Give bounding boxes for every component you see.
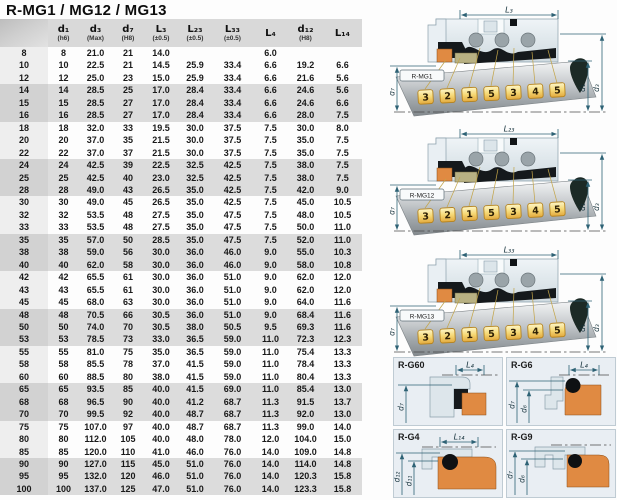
svg-text:1: 1 [466,330,473,341]
table-cell: 62.0 [79,259,112,271]
row-label: 33 [0,221,48,233]
table-cell: 137.0 [79,483,112,495]
table-cell: 27 [112,109,144,121]
row-label: 15 [0,97,48,109]
spring [521,33,535,47]
table-row: 484870.56630.536.051.09.068.411.6 [0,309,362,321]
table-cell: 28.5 [79,84,112,96]
table-cell: 40.0 [144,408,178,420]
row-label: 18 [0,122,48,134]
table-cell: 22 [48,147,79,159]
table-cell: 57.0 [79,234,112,246]
table-cell: 9.0 [253,259,288,271]
table-cell: 59.0 [79,246,112,258]
table-cell: 51.0 [212,284,253,296]
table-cell: 9.0 [253,284,288,296]
table-cell: 27.5 [144,209,178,221]
table-row: 707099.59240.048.768.711.392.013.0 [0,408,362,420]
seal-diagram-r-mg12: R-MG12 3 2 1 5 3 4 5 L₂₃ d₁ [390,123,612,237]
table-cell: 92.0 [288,408,323,420]
table-cell: 38.0 [178,321,212,333]
table-cell: 13.3 [323,371,362,383]
table-cell: 28.5 [144,234,178,246]
table-row: 161628.52717.028.433.46.628.07.5 [0,109,362,121]
table-cell: 109.0 [288,446,323,458]
table-cell: 7.5 [323,172,362,184]
table-cell: 27 [112,97,144,109]
svg-text:d₆: d₆ [520,405,529,413]
table-cell: 6.6 [253,97,288,109]
table-cell: 33.4 [212,97,253,109]
table-cell: 21.5 [144,147,178,159]
table-cell: 58.0 [288,259,323,271]
table-cell: 76.0 [212,446,253,458]
table-cell: 13.3 [323,358,362,370]
table-row: 686896.59040.041.268.711.391.513.7 [0,396,362,408]
table-cell: 92 [112,408,144,420]
table-cell: 7.5 [253,122,288,134]
svg-text:d₁: d₁ [578,324,587,332]
table-cell: 112.0 [79,433,112,445]
svg-text:d₇: d₇ [507,471,515,479]
table-cell: 96.5 [79,396,112,408]
table-cell: 42.5 [212,196,253,208]
table-row: 202037.03521.530.037.57.535.07.5 [0,134,362,146]
table-cell: 68 [48,396,79,408]
svg-text:L₂₃: L₂₃ [504,125,515,134]
table-cell: 58 [112,259,144,271]
svg-text:R-MG13: R-MG13 [410,314,435,321]
table-cell: 25.9 [178,72,212,84]
svg-text:3: 3 [422,92,429,103]
table-cell: 64.0 [288,296,323,308]
table-cell: 59.0 [212,358,253,370]
table-cell: 52.0 [288,234,323,246]
table-cell: 7.5 [253,147,288,159]
table-cell: 13.0 [323,383,362,395]
table-cell: 38.0 [288,159,323,171]
table-cell: 13.0 [323,408,362,420]
table-cell: 9.0 [253,296,288,308]
table-cell: 62.0 [288,271,323,283]
svg-text:d₁₂: d₁₂ [394,472,402,483]
table-cell: 12.0 [323,284,362,296]
table-cell: 41.5 [178,358,212,370]
table-cell: 72.3 [288,333,323,345]
table-cell: 55 [48,346,79,358]
table-row: 9090127.011545.051.076.014.0114.014.8 [0,458,362,470]
table-cell: 6.6 [253,72,288,84]
row-label: 42 [0,271,48,283]
svg-text:2: 2 [444,210,451,221]
table-cell: 53.5 [79,221,112,233]
dim-d11: d₁₁ [405,461,439,495]
svg-text:1: 1 [466,209,473,220]
table-cell: 35.0 [144,346,178,358]
table-cell: 68.0 [79,296,112,308]
table-cell: 37.0 [79,134,112,146]
table-cell: 80 [112,371,144,383]
table-cell: 7.5 [253,184,288,196]
table-cell: 80.4 [288,371,323,383]
svg-text:2: 2 [444,331,451,342]
table-cell: 10.5 [323,209,362,221]
table-cell: 7.5 [323,109,362,121]
table-cell: 47.0 [144,483,178,495]
svg-text:L₁₄: L₁₄ [454,433,466,442]
table-cell: 65.5 [79,284,112,296]
table-cell: 6.6 [253,109,288,121]
table-cell: 10 [48,59,79,71]
table-cell: 12.3 [323,333,362,345]
table-row: 8821.02114.06.0 [0,47,362,59]
table-cell: 6.0 [253,47,288,59]
corner-cell [0,19,48,47]
table-cell: 9.0 [253,271,288,283]
seat-drawing-r-g9: d₇ d₆ [507,431,615,497]
table-cell: 93.5 [79,383,112,395]
table-cell: 50 [112,234,144,246]
table-cell: 11.3 [253,408,288,420]
table-cell: 43 [112,184,144,196]
table-cell: 68.7 [212,408,253,420]
table-cell: 36.0 [178,259,212,271]
row-label: 14 [0,84,48,96]
table-cell: 11.6 [323,296,362,308]
table-cell: 28.5 [79,109,112,121]
table-cell: 85 [48,446,79,458]
table-cell: 30.0 [144,296,178,308]
svg-text:d₇: d₇ [390,207,397,215]
table-cell: 42.5 [212,159,253,171]
table-row: 424265.56130.036.051.09.062.012.0 [0,271,362,283]
table-row: 383859.05630.036.046.09.055.010.3 [0,246,362,258]
table-cell: 46.0 [212,246,253,258]
table-cell: 107.0 [79,421,112,433]
table-cell: 78 [112,358,144,370]
table-cell: 21.0 [79,47,112,59]
svg-text:5: 5 [488,208,495,219]
table-cell: 59.0 [212,371,253,383]
svg-text:R-MG1: R-MG1 [412,74,433,81]
table-cell: 14.0 [253,483,288,495]
table-cell: 30.0 [178,134,212,146]
table-cell: 18 [48,122,79,134]
table-cell: 51.0 [212,296,253,308]
seal-housing [428,259,558,304]
table-cell: 12.0 [253,433,288,445]
row-label: 85 [0,446,48,458]
table-cell: 7.5 [323,134,362,146]
table-cell: 50 [48,321,79,333]
table-cell: 14.0 [144,47,178,59]
table-cell: 7.5 [253,196,288,208]
table-cell: 37 [112,147,144,159]
table-cell: 13.7 [323,396,362,408]
table-cell: 7.5 [253,172,288,184]
table-cell: 78.5 [79,333,112,345]
table-cell: 48 [112,221,144,233]
table-cell: 105 [112,433,144,445]
table-cell: 47.5 [212,221,253,233]
dimension-table: d₁(h6) d₃(Max) d₇(H8) L₃(±0.5) L₂₃(±0.5)… [0,19,362,495]
table-cell: 7.5 [253,221,288,233]
table-cell: 85.5 [79,358,112,370]
table-cell: 41.0 [144,446,178,458]
table-cell: 35 [48,234,79,246]
table-cell: 33 [112,122,144,134]
table-cell: 36.5 [178,333,212,345]
detail-panel-r-g9: R-G9 d₇ d₆ [506,429,616,498]
table-cell: 70 [48,408,79,420]
table-row: 454568.06330.036.051.09.064.011.6 [0,296,362,308]
table-cell: 75.4 [288,346,323,358]
row-label: 58 [0,358,48,370]
table-cell: 33.4 [212,109,253,121]
table-cell: 48.0 [178,433,212,445]
svg-text:d₇: d₇ [390,88,397,96]
table-cell: 132.0 [79,470,112,482]
table-cell: 11.0 [253,371,288,383]
table-cell: 36.0 [178,246,212,258]
table-cell: 36.0 [178,271,212,283]
svg-text:d₇: d₇ [397,403,406,411]
table-cell: 69.0 [212,383,253,395]
col-header-l4: L₄ [253,19,288,47]
table-row: 323253.54827.535.047.57.548.010.5 [0,209,362,221]
seat-drawing-r-g60: L₄ d₇ [394,359,502,425]
svg-text:d₆: d₆ [518,475,527,483]
row-label: 35 [0,234,48,246]
table-cell: 35 [112,134,144,146]
table-cell: 99.0 [288,421,323,433]
table-cell: 40.0 [144,396,178,408]
table-cell: 30.5 [144,321,178,333]
table-cell: 32.0 [79,122,112,134]
table-cell: 20 [48,134,79,146]
table-cell: 42.5 [79,172,112,184]
table-cell: 19.5 [144,122,178,134]
table-cell: 59.0 [212,333,253,345]
table-row: 222237.03721.530.037.57.535.07.5 [0,147,362,159]
table-cell: 8 [48,47,79,59]
row-label: 55 [0,346,48,358]
table-cell: 13.3 [323,346,362,358]
detail-panel-r-g60: R-G60 L₄ d₇ [393,357,503,426]
svg-text:3: 3 [510,207,517,218]
table-cell: 6.6 [253,59,288,71]
col-header-l14: L₁₄ [323,19,362,47]
table-row: 9595132.012046.051.076.014.0120.315.8 [0,470,362,482]
table-cell: 11.3 [253,396,288,408]
table-cell: 7.5 [253,159,288,171]
table-row: 8080112.010540.048.078.012.0104.015.0 [0,433,362,445]
col-header-d7: d₇(H8) [112,19,144,47]
dim-top-length: L₃ [460,6,558,20]
table-cell: 36.0 [178,284,212,296]
table-cell: 32.5 [178,172,212,184]
table-cell: 10.8 [323,259,362,271]
table-cell: 42.5 [79,159,112,171]
table-cell: 21 [112,47,144,59]
table-cell: 16 [48,109,79,121]
table-cell: 90 [48,458,79,470]
table-cell: 24 [48,159,79,171]
table-row: 404062.05830.036.046.09.058.010.8 [0,259,362,271]
table-cell: 23.0 [144,172,178,184]
row-label: 60 [0,371,48,383]
table-cell: 36.0 [178,296,212,308]
table-cell: 76.0 [212,483,253,495]
dim-l14: L₁₄ [440,433,478,448]
row-label: 95 [0,470,48,482]
svg-text:L₄: L₄ [580,361,588,370]
col-header-l23: L₂₃(±0.5) [178,19,212,47]
row-label: 25 [0,172,48,184]
table-cell: 33 [48,221,79,233]
svg-text:5: 5 [488,329,495,340]
row-label: 12 [0,72,48,84]
svg-text:d₇: d₇ [390,328,397,336]
table-cell: 23 [112,72,144,84]
table-cell: 35.0 [178,184,212,196]
seat-gland [545,377,563,409]
dim-top-length: L₂₃ [460,125,558,139]
table-row: 252542.54023.032.542.57.538.07.5 [0,172,362,184]
table-cell: 32.5 [178,159,212,171]
table-cell: 11.0 [253,358,288,370]
page-title: R-MG1 / MG12 / MG13 [6,2,392,18]
table-cell: 17.0 [144,109,178,121]
row-label: 100 [0,483,48,495]
row-label: 70 [0,408,48,420]
seal-dimension-table-section: R-MG1 / MG12 / MG13 d₁(h6) d₃(Max) d₇(H8… [0,0,392,495]
svg-text:3: 3 [422,211,429,222]
table-cell: 42.5 [212,184,253,196]
table-cell: 15 [48,97,79,109]
table-cell: 15.0 [323,433,362,445]
table-cell: 26.5 [144,196,178,208]
table-cell: 46.0 [212,259,253,271]
table-row: 151528.52717.028.433.46.624.66.6 [0,97,362,109]
table-cell: 22.5 [144,159,178,171]
table-cell: 123.3 [288,483,323,495]
row-label: 8 [0,47,48,59]
table-cell [288,47,323,59]
table-cell: 90 [112,396,144,408]
table-row: 656593.58540.041.569.011.085.413.0 [0,383,362,395]
table-cell: 69.3 [288,321,323,333]
o-ring [442,454,458,470]
dim-top-length: L₃₃ [460,246,558,260]
seal-diagram-r-mg1: R-MG1 3 2 1 5 3 4 5 L₃ d₁ [390,4,612,118]
table-cell: 48 [48,309,79,321]
table-cell: 7.5 [323,159,362,171]
spring [495,273,509,287]
table-cell: 14.0 [323,421,362,433]
row-label: 20 [0,134,48,146]
table-cell: 14.0 [253,470,288,482]
dim-l4: L₄ [456,361,484,376]
table-cell: 25.9 [178,59,212,71]
table-cell: 28.4 [178,109,212,121]
table-cell: 41.5 [178,371,212,383]
table-cell: 35.0 [178,221,212,233]
spring [469,273,483,287]
table-row: 434365.56130.036.051.09.062.012.0 [0,284,362,296]
table-cell: 42.0 [288,184,323,196]
table-cell: 37.0 [79,147,112,159]
table-cell: 33.4 [212,84,253,96]
table-row: 121225.02315.025.933.46.621.65.6 [0,72,362,84]
table-cell: 36.0 [178,309,212,321]
table-cell: 33.4 [212,72,253,84]
table-cell: 19.2 [288,59,323,71]
table-cell: 30.5 [144,309,178,321]
table-cell: 110 [112,446,144,458]
svg-text:5: 5 [554,325,561,336]
svg-text:L₃: L₃ [505,6,513,15]
table-cell: 21 [112,59,144,71]
table-cell: 35.0 [288,134,323,146]
header-row: d₁(h6) d₃(Max) d₇(H8) L₃(±0.5) L₂₃(±0.5)… [0,19,362,47]
table-cell: 42 [48,271,79,283]
table-cell: 8.0 [323,122,362,134]
table-row: 282849.04326.535.042.57.542.09.0 [0,184,362,196]
seal-housing [428,19,558,64]
svg-text:4: 4 [532,205,540,216]
row-label: 50 [0,321,48,333]
table-cell: 15.8 [323,470,362,482]
row-label: 22 [0,147,48,159]
table-cell: 9.0 [253,309,288,321]
o-ring [566,378,581,393]
svg-text:5: 5 [554,204,561,215]
svg-text:L₄: L₄ [466,361,474,370]
table-cell: 11.0 [323,234,362,246]
table-cell: 35.0 [178,234,212,246]
table-row: 555581.07535.036.559.011.075.413.3 [0,346,362,358]
table-cell: 73 [112,333,144,345]
table-cell: 78.0 [212,433,253,445]
table-cell: 6.6 [253,84,288,96]
table-cell: 14.0 [253,446,288,458]
table-cell: 32 [48,209,79,221]
table-cell: 53.5 [79,209,112,221]
row-label: 68 [0,396,48,408]
table-cell: 97 [112,421,144,433]
table-cell: 41.2 [178,396,212,408]
table-cell: 17.0 [144,97,178,109]
table-cell: 9.5 [253,321,288,333]
table-row: 8585120.011041.046.076.014.0109.014.8 [0,446,362,458]
table-cell: 125 [112,483,144,495]
table-cell: 37.5 [212,147,253,159]
table-cell: 91.5 [288,396,323,408]
spring [469,152,483,166]
row-label: 48 [0,309,48,321]
table-cell: 21.5 [144,134,178,146]
table-cell: 5.6 [323,84,362,96]
table-cell: 25 [112,84,144,96]
table-row: 353557.05028.535.047.57.552.011.0 [0,234,362,246]
table-cell: 65.5 [79,271,112,283]
table-cell: 35.0 [178,209,212,221]
row-label: 30 [0,196,48,208]
svg-text:2: 2 [444,91,451,102]
svg-text:1: 1 [466,90,473,101]
table-cell: 63 [112,296,144,308]
